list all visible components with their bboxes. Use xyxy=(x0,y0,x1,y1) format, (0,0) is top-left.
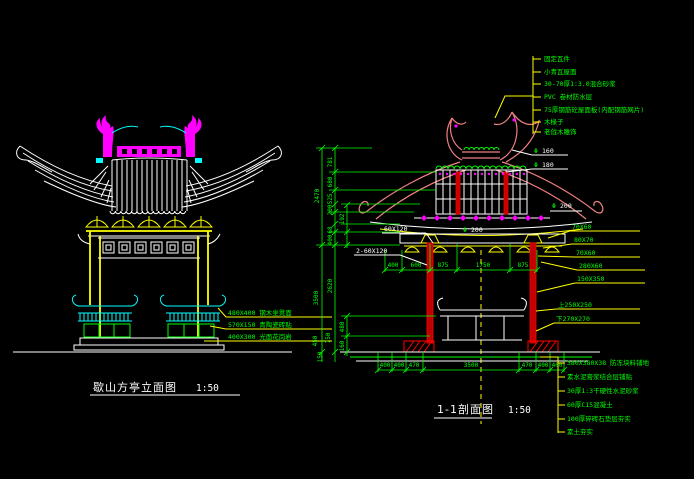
hdim-label: 3500 xyxy=(464,362,479,369)
vdim-label: 68 xyxy=(327,226,334,234)
bench-callout-label: 400X300 光面花岗岩 xyxy=(228,332,292,341)
drawing-title: 1-1剖面图 xyxy=(437,402,494,416)
cad-drawing: 480X400 钢木坐凳面 570X150 青陶瓷砖贴 400X300 光面花岗… xyxy=(0,0,694,479)
beam-size-label: 60X120 xyxy=(384,225,408,233)
eave-ornaments xyxy=(86,216,212,227)
floor-layer-label: 素土夯实 xyxy=(567,427,594,436)
beam-size-label: 2-60X120 xyxy=(356,247,387,255)
eave-left xyxy=(17,146,116,207)
vdim-label: 160 xyxy=(339,340,346,351)
member-size-label: 上250X250 xyxy=(558,300,592,309)
vdim-label: 3500 xyxy=(313,290,320,305)
bottom-dim-row: 400 400 470 3500 470 400 400 xyxy=(375,352,567,373)
vdim-label: 2470 xyxy=(314,188,321,203)
member-size-label: 280X60 xyxy=(579,262,603,270)
roof-tiles xyxy=(110,158,187,214)
vdim-label: 400 xyxy=(327,234,334,245)
cad-canvas: 480X400 钢木坐凳面 570X150 青陶瓷砖贴 400X300 光面花岗… xyxy=(0,0,694,479)
elevation-title-block: 歇山方亭立面图 1:50 xyxy=(90,380,240,395)
vdim-label: 150 xyxy=(317,351,324,362)
vdim-label: 480 xyxy=(339,321,346,332)
floor-layer-label: 30厚1:3干硬性水泥砂浆 xyxy=(567,386,639,395)
member-size-label: 70X60 xyxy=(576,249,596,257)
section-ridge-finials xyxy=(447,112,539,162)
bench-right xyxy=(160,295,225,337)
section-title-block: 1-1剖面图 1:50 xyxy=(434,402,531,418)
drawing-title: 歇山方亭立面图 xyxy=(93,380,177,394)
bench-left xyxy=(72,295,137,337)
hdim-label: 470 xyxy=(409,362,420,369)
member-size-label: 80X70 xyxy=(574,236,594,244)
floor-layer-label: 380X380X38 防冻块料铺地 xyxy=(567,358,650,367)
inner-dim-row: 400 600 875 1750 875 xyxy=(382,244,540,273)
ridge-finial-right xyxy=(184,115,201,157)
ridge-finial-left xyxy=(96,115,113,157)
section-footings xyxy=(340,341,600,361)
roof-layer-label: 小青瓦屋面 xyxy=(544,67,577,76)
roof-layer-callouts: 固定瓦件 小青瓦屋面 30-70厚1:3.0混合砂浆 PVC 卷材防水层 75厚… xyxy=(495,54,644,136)
bench-callout-label: 570X150 青陶瓷砖贴 xyxy=(228,320,292,329)
beam-and-posts xyxy=(78,231,220,338)
vdim-label: 781 xyxy=(327,156,334,167)
hdim-label: 400 xyxy=(388,262,399,269)
roof-ridge xyxy=(117,146,181,157)
hdim-label: 470 xyxy=(522,362,533,369)
vdim-label: 450 xyxy=(312,335,319,346)
diameter-label: 200 xyxy=(560,202,572,210)
vdim-label: 192 xyxy=(339,213,346,224)
vdim-label: 200 xyxy=(327,204,334,215)
floor-layer-label: 100厚碎砖石垫层夯实 xyxy=(567,414,631,423)
hdim-label: 875 xyxy=(438,262,449,269)
roof-layer-label: 老戗木雕饰 xyxy=(544,127,577,136)
section-drawing: 2470 781 680 525 200 192 68 400 3500 262… xyxy=(312,54,650,436)
phi-icon: Φ xyxy=(552,202,556,210)
vdim-label: 525 xyxy=(327,193,334,204)
hdim-label: 400 xyxy=(394,362,405,369)
hdim-label: 1750 xyxy=(476,262,491,269)
phi-icon: Φ xyxy=(534,147,538,155)
member-size-label: 下270X270 xyxy=(556,315,590,323)
bench-callout-label: 480X400 钢木坐凳面 xyxy=(228,308,292,317)
member-size-label: 70X60 xyxy=(572,223,592,231)
vdim-label: 2620 xyxy=(327,278,334,293)
hdim-label: 400 xyxy=(380,362,391,369)
roof-layer-label: PVC 卷材防水层 xyxy=(544,92,593,101)
hdim-label: 400 xyxy=(538,362,549,369)
vdim-label: 750 xyxy=(325,332,332,343)
phi-icon: Φ xyxy=(463,226,467,234)
vdim-label: 680 xyxy=(327,176,334,187)
floor-layer-label: 60厚C15混凝土 xyxy=(567,400,613,409)
member-size-callouts: 70X60 80X70 70X60 280X60 150X350 上250X25… xyxy=(536,223,645,331)
member-size-label: 150X350 xyxy=(577,275,604,283)
diameter-label: 160 xyxy=(542,147,554,155)
drawing-scale: 1:50 xyxy=(196,383,219,394)
roof-layer-label: 30-70厚1:3.0混合砂浆 xyxy=(544,79,616,88)
roof-layer-label: 木椽子 xyxy=(544,117,564,126)
section-truss xyxy=(436,166,527,214)
section-bench xyxy=(438,298,527,340)
hdim-label: 600 xyxy=(411,262,422,269)
diameter-label: 200 xyxy=(471,226,483,234)
roof-layer-label: 75厚钢筋砼屋面板(内配钢筋网片) xyxy=(544,105,644,114)
hdim-label: 875 xyxy=(518,262,529,269)
floor-layer-label: 素水泥膏浆结合层铺贴 xyxy=(567,372,633,381)
diameter-label: 180 xyxy=(542,161,554,169)
elevation-drawing: 480X400 钢木坐凳面 570X150 青陶瓷砖贴 400X300 光面花岗… xyxy=(13,115,332,395)
lattice-frieze xyxy=(98,238,200,258)
phi-icon: Φ xyxy=(534,161,538,169)
drawing-scale: 1:50 xyxy=(508,405,531,416)
eave-right xyxy=(182,146,281,207)
roof-layer-label: 固定瓦件 xyxy=(544,54,571,63)
